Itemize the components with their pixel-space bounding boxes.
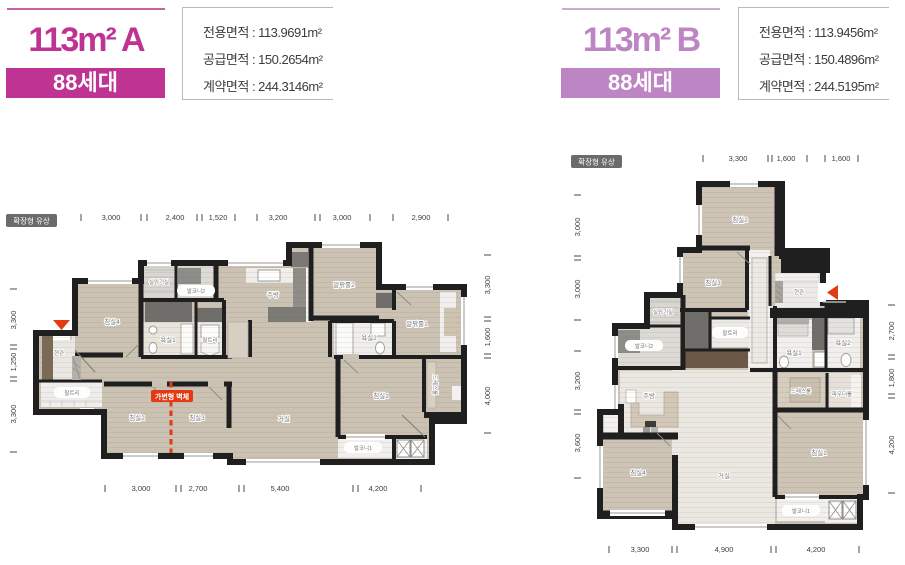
svg-text:3,300: 3,300	[729, 154, 748, 163]
svg-text:침실2: 침실2	[732, 215, 748, 224]
svg-text:발코니1: 발코니1	[792, 507, 810, 515]
svg-text:3,600: 3,600	[573, 434, 582, 453]
svg-text:알팎룰2: 알팎룰2	[333, 280, 355, 289]
svg-text:침실4: 침실4	[104, 317, 120, 326]
svg-text:침실1: 침실1	[373, 391, 389, 400]
svg-text:욕실2: 욕실2	[361, 333, 377, 342]
svg-text:1,250: 1,250	[9, 353, 18, 372]
svg-text:실외기실: 실외기실	[149, 278, 169, 286]
svg-text:거실: 거실	[278, 414, 290, 423]
svg-text:3,300: 3,300	[631, 545, 650, 554]
svg-text:가변형 벽체: 가변형 벽체	[155, 392, 189, 401]
svg-text:2,700: 2,700	[189, 484, 208, 493]
svg-text:3,000: 3,000	[132, 484, 151, 493]
svg-text:확장형 유상: 확장형 유상	[578, 157, 615, 167]
svg-text:알팎룰1: 알팎룰1	[406, 319, 428, 328]
svg-text:4,200: 4,200	[887, 436, 896, 455]
svg-text:3,200: 3,200	[269, 213, 288, 222]
svg-text:발코니2: 발코니2	[187, 287, 205, 295]
svg-text:확장형 유상: 확장형 유상	[13, 216, 50, 226]
svg-text:3,300: 3,300	[9, 311, 18, 330]
svg-text:4,900: 4,900	[715, 545, 734, 554]
svg-text:3,000: 3,000	[333, 213, 352, 222]
svg-text:1,600: 1,600	[832, 154, 851, 163]
svg-text:4,200: 4,200	[369, 484, 388, 493]
svg-text:1,600: 1,600	[483, 328, 492, 347]
svg-text:5,400: 5,400	[271, 484, 290, 493]
svg-text:욕실1: 욕실1	[160, 335, 176, 344]
svg-text:3,200: 3,200	[573, 372, 582, 391]
svg-text:팔트리: 팔트리	[722, 329, 737, 337]
svg-text:드레스룰: 드레스룰	[431, 375, 439, 395]
svg-text:팔트리: 팔트리	[64, 389, 79, 397]
svg-text:1,520: 1,520	[209, 213, 228, 222]
svg-text:현관: 현관	[794, 288, 804, 296]
svg-text:발코니1: 발코니1	[354, 444, 372, 452]
svg-text:주방: 주방	[643, 391, 655, 400]
svg-text:1,800: 1,800	[887, 369, 896, 388]
svg-text:2,400: 2,400	[166, 213, 185, 222]
svg-text:침실3: 침실3	[189, 413, 205, 422]
svg-text:3,000: 3,000	[573, 280, 582, 299]
svg-text:팔트리: 팔트리	[202, 336, 217, 344]
svg-text:2,900: 2,900	[412, 213, 431, 222]
svg-text:욕실2: 욕실2	[835, 338, 851, 347]
svg-text:드레스룰: 드레스룰	[791, 387, 811, 395]
svg-text:거실: 거실	[718, 471, 730, 480]
svg-text:욕실1: 욕실1	[786, 348, 802, 357]
svg-text:파우더룰: 파우더룰	[832, 390, 852, 398]
svg-text:3,000: 3,000	[102, 213, 121, 222]
svg-text:침실3: 침실3	[705, 278, 721, 287]
svg-text:침실1: 침실1	[811, 448, 827, 457]
svg-text:4,200: 4,200	[807, 545, 826, 554]
svg-text:현관: 현관	[54, 349, 64, 357]
svg-text:침실2: 침실2	[129, 413, 145, 422]
svg-text:발코니2: 발코니2	[635, 342, 653, 350]
svg-text:침실4: 침실4	[630, 468, 646, 477]
svg-text:3,000: 3,000	[573, 218, 582, 237]
svg-text:4,000: 4,000	[483, 387, 492, 406]
svg-text:3,300: 3,300	[9, 405, 18, 424]
svg-text:실외기실: 실외기실	[653, 308, 673, 316]
svg-text:주방: 주방	[267, 290, 279, 299]
svg-text:3,300: 3,300	[483, 276, 492, 295]
svg-text:1,600: 1,600	[777, 154, 796, 163]
svg-text:2,700: 2,700	[887, 322, 896, 341]
